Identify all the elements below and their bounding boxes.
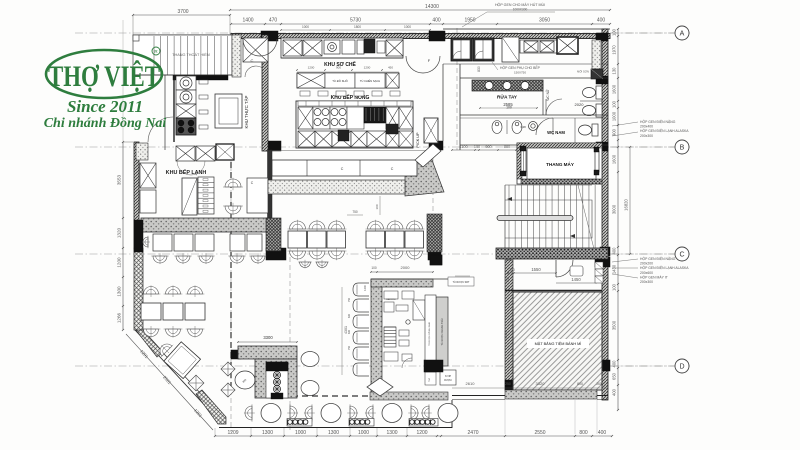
svg-text:TIVI: TIVI xyxy=(429,378,431,382)
svg-text:WC NAM: WC NAM xyxy=(547,130,565,135)
svg-text:5730: 5730 xyxy=(350,18,361,24)
svg-text:200x400: 200x400 xyxy=(640,125,653,129)
svg-text:3,28: 3,28 xyxy=(520,125,526,129)
svg-text:1400: 1400 xyxy=(242,18,253,24)
svg-text:2020: 2020 xyxy=(575,102,585,107)
svg-text:830: 830 xyxy=(477,66,481,72)
svg-text:200x300: 200x300 xyxy=(640,280,653,284)
svg-text:1100: 1100 xyxy=(459,145,467,149)
svg-text:C: C xyxy=(679,251,684,258)
svg-text:3553: 3553 xyxy=(117,174,122,185)
svg-text:400: 400 xyxy=(612,247,617,255)
svg-text:650: 650 xyxy=(612,372,617,380)
svg-text:C: C xyxy=(391,167,394,171)
svg-text:16820: 16820 xyxy=(624,199,629,211)
svg-text:100: 100 xyxy=(612,28,617,36)
svg-text:TỦ ĐỒ KHÔ: TỦ ĐỒ KHÔ xyxy=(332,78,348,83)
svg-text:HỘP GEN CHO MÁY HÚT MÙI: HỘP GEN CHO MÁY HÚT MÙI xyxy=(495,2,545,7)
svg-text:400: 400 xyxy=(432,18,441,24)
svg-text:900: 900 xyxy=(612,128,617,136)
svg-text:2470: 2470 xyxy=(467,430,478,436)
svg-text:5150: 5150 xyxy=(503,330,508,340)
svg-text:150X750: 150X750 xyxy=(514,71,526,75)
svg-text:600: 600 xyxy=(348,329,351,334)
svg-text:MẶT BẰNG TIỆM BÁNH MÌ: MẶT BẰNG TIỆM BÁNH MÌ xyxy=(535,341,582,346)
svg-text:400: 400 xyxy=(612,388,617,396)
svg-text:14300: 14300 xyxy=(425,4,439,10)
svg-text:1600: 1600 xyxy=(612,154,617,164)
svg-text:100: 100 xyxy=(612,100,617,108)
svg-text:400: 400 xyxy=(598,430,607,436)
svg-text:1320: 1320 xyxy=(117,227,122,238)
svg-text:250: 250 xyxy=(505,382,511,386)
svg-text:2550: 2550 xyxy=(534,430,545,436)
svg-text:100: 100 xyxy=(375,204,379,209)
svg-text:1450: 1450 xyxy=(571,277,581,282)
svg-text:900: 900 xyxy=(485,145,491,149)
svg-text:2000: 2000 xyxy=(401,265,411,270)
svg-text:1200: 1200 xyxy=(416,430,427,436)
svg-text:1800: 1800 xyxy=(354,25,361,29)
svg-text:HỘP GEN ĐIỆN LẠNH ALASKA: HỘP GEN ĐIỆN LẠNH ALASKA xyxy=(640,265,689,270)
svg-text:900: 900 xyxy=(336,66,341,70)
svg-text:THANG MÁY: THANG MÁY xyxy=(546,161,574,167)
svg-text:1000: 1000 xyxy=(302,25,309,29)
svg-text:3320: 3320 xyxy=(536,381,546,386)
svg-text:1950: 1950 xyxy=(464,18,475,24)
svg-text:C: C xyxy=(341,167,344,171)
svg-text:HỘP GEN PHỤ CHO BẾP: HỘP GEN PHỤ CHO BẾP xyxy=(500,65,541,70)
svg-text:TỦ RƯỢU NGANG TRÁI: TỦ RƯỢU NGANG TRÁI xyxy=(441,318,444,345)
svg-text:1000: 1000 xyxy=(358,430,369,436)
svg-text:1266: 1266 xyxy=(117,312,122,323)
svg-text:D: D xyxy=(679,363,684,370)
svg-text:2610: 2610 xyxy=(466,381,476,386)
svg-text:1300: 1300 xyxy=(117,286,122,297)
svg-text:200x200: 200x200 xyxy=(640,262,653,266)
svg-text:750: 750 xyxy=(348,345,351,350)
svg-text:3050: 3050 xyxy=(539,18,550,24)
svg-text:N VIP: N VIP xyxy=(445,375,452,378)
svg-text:100: 100 xyxy=(371,266,377,270)
svg-text:WC NỮ: WC NỮ xyxy=(545,89,550,100)
svg-text:THỢ VIỆT: THỢ VIỆT xyxy=(48,60,160,93)
svg-text:260: 260 xyxy=(596,382,602,386)
svg-text:470: 470 xyxy=(269,18,278,24)
svg-text:A: A xyxy=(680,30,685,37)
svg-text:HỘP GEN ĐIỆN NẶNG: HỘP GEN ĐIỆN NẶNG xyxy=(640,256,676,261)
svg-text:1200: 1200 xyxy=(364,66,371,70)
svg-text:750: 750 xyxy=(348,297,351,302)
svg-text:PICK UP: PICK UP xyxy=(416,132,420,148)
svg-text:3000: 3000 xyxy=(612,204,617,214)
svg-text:200x600: 200x600 xyxy=(640,271,653,275)
svg-text:130: 130 xyxy=(612,67,617,75)
svg-text:KHU THỰC TẬP: KHU THỰC TẬP xyxy=(244,96,249,129)
svg-text:B: B xyxy=(680,144,685,151)
svg-text:1000: 1000 xyxy=(295,430,306,436)
svg-text:1300: 1300 xyxy=(328,430,339,436)
svg-text:1209: 1209 xyxy=(227,430,238,436)
svg-text:HỘP GEN ĐIỆN LẠNH ALASKA: HỘP GEN ĐIỆN LẠNH ALASKA xyxy=(640,128,689,133)
svg-text:HỘP GEN ĐIỆN NẶNG: HỘP GEN ĐIỆN NẶNG xyxy=(640,119,676,124)
svg-text:1300: 1300 xyxy=(386,430,397,436)
svg-text:1970: 1970 xyxy=(612,45,617,55)
svg-text:400: 400 xyxy=(597,18,606,24)
svg-text:3500: 3500 xyxy=(612,320,617,330)
svg-text:100: 100 xyxy=(474,145,480,149)
svg-text:1000: 1000 xyxy=(612,111,617,121)
svg-text:100: 100 xyxy=(506,106,512,110)
svg-text:800: 800 xyxy=(504,145,510,149)
svg-text:1600: 1600 xyxy=(612,84,617,94)
svg-text:1200: 1200 xyxy=(308,66,315,70)
svg-text:TỦ RƯỢU GỖ ĐH 2440: TỦ RƯỢU GỖ ĐH 2440 xyxy=(428,321,431,345)
svg-text:RỬA TAY: RỬA TAY xyxy=(497,94,517,100)
svg-text:1550: 1550 xyxy=(531,267,541,272)
svg-text:800: 800 xyxy=(577,382,583,386)
svg-text:700: 700 xyxy=(506,277,510,283)
svg-text:400: 400 xyxy=(612,360,617,368)
svg-text:RƯỢU: RƯỢU xyxy=(444,379,452,382)
svg-text:1000X300: 1000X300 xyxy=(513,8,528,12)
svg-text:1430: 1430 xyxy=(612,264,617,274)
svg-text:TỦ RƯỢU SRT: TỦ RƯỢU SRT xyxy=(453,281,470,284)
svg-text:750: 750 xyxy=(352,210,358,214)
svg-text:100: 100 xyxy=(509,268,515,272)
svg-text:Since 2011: Since 2011 xyxy=(67,97,143,116)
svg-text:THANG THOÁT HIỂM: THANG THOÁT HIỂM xyxy=(172,52,210,57)
svg-text:1300: 1300 xyxy=(262,430,273,436)
svg-text:600: 600 xyxy=(348,313,351,318)
svg-text:1400: 1400 xyxy=(363,285,367,291)
svg-text:C: C xyxy=(251,58,254,63)
svg-text:3300: 3300 xyxy=(263,335,273,340)
svg-text:KHU BẾP LẠNH: KHU BẾP LẠNH xyxy=(166,169,207,176)
svg-text:BAR1150: BAR1150 xyxy=(386,298,396,301)
svg-text:100: 100 xyxy=(612,283,617,291)
svg-text:200x300: 200x300 xyxy=(640,134,653,138)
svg-text:HỘP GEN MÁY IT: HỘP GEN MÁY IT xyxy=(640,274,668,279)
svg-text:3700: 3700 xyxy=(177,9,188,15)
svg-text:1000: 1000 xyxy=(404,25,411,29)
svg-text:800: 800 xyxy=(579,430,588,436)
svg-text:1200: 1200 xyxy=(117,257,122,268)
svg-text:450: 450 xyxy=(388,66,393,70)
svg-text:Chi nhánh Đồng Nai: Chi nhánh Đồng Nai xyxy=(44,116,167,131)
